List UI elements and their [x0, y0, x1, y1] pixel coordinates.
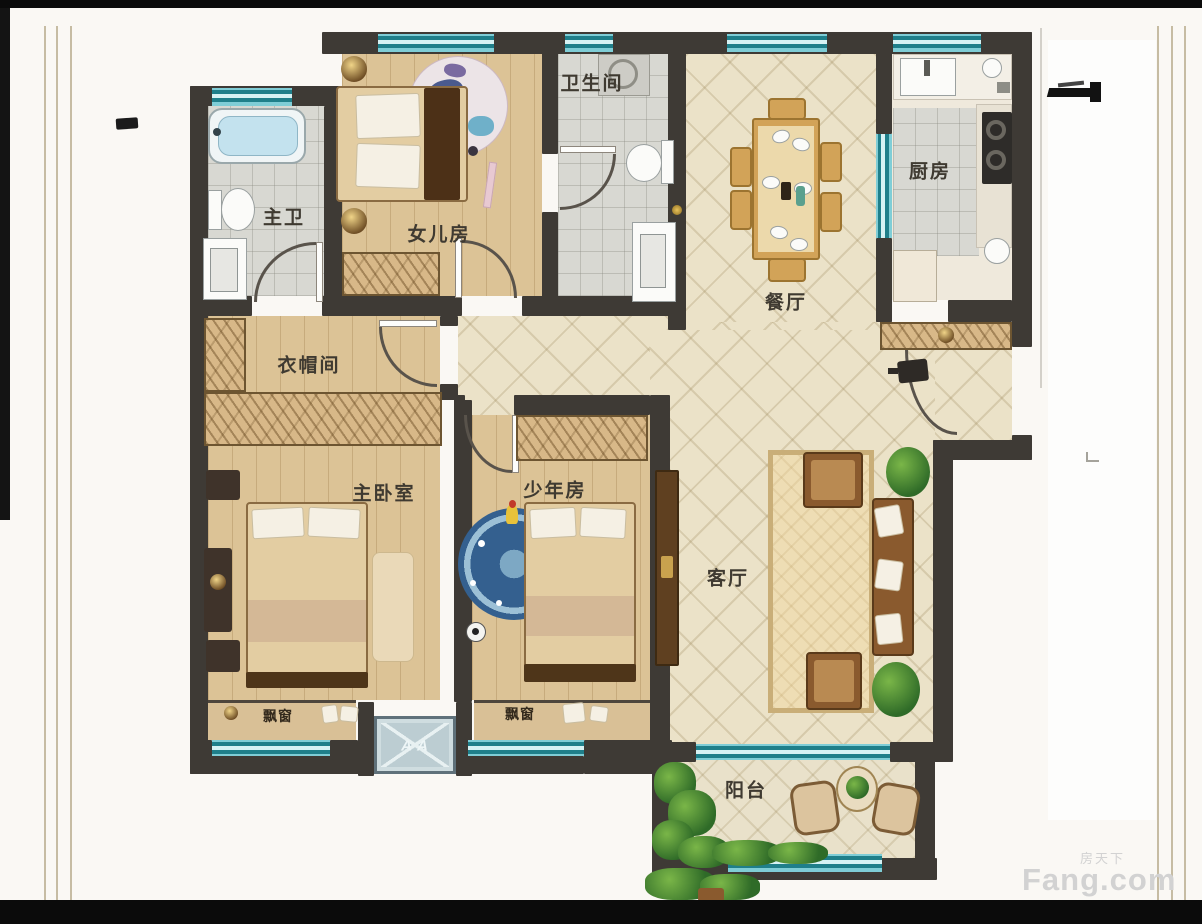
- room-label-daughter-room: 女儿房: [407, 220, 470, 247]
- burner: [986, 150, 1006, 170]
- rug-master: [372, 552, 414, 662]
- bottom-letterbox-bar: [0, 900, 1202, 924]
- fridge: [893, 250, 937, 302]
- pillow: [579, 507, 627, 539]
- nightstand: [206, 640, 240, 672]
- bay-decor-vase: [224, 706, 238, 720]
- bay-decor: [321, 704, 339, 724]
- wall: [514, 395, 650, 415]
- wall: [190, 756, 360, 774]
- door-leaf: [316, 242, 323, 302]
- kitchen-item: [997, 82, 1010, 93]
- room-label-master-bedroom: 主卧室: [352, 479, 415, 506]
- potted-plant: [872, 662, 920, 717]
- rug-star: [478, 540, 485, 547]
- dresser: [204, 548, 232, 632]
- guide-line: [44, 26, 46, 900]
- door-leaf: [455, 238, 462, 298]
- left-edge-strip: [0, 8, 10, 520]
- guide-line: [1171, 26, 1173, 900]
- armchair-cushion: [811, 460, 855, 500]
- ac-platform-label: A A: [401, 738, 429, 755]
- bed-footboard: [524, 664, 636, 682]
- wardrobe-teen: [516, 415, 648, 461]
- entry-marker: [897, 358, 929, 383]
- wall: [933, 440, 953, 762]
- burner: [986, 120, 1006, 140]
- vanity-basin: [640, 234, 666, 288]
- room-label-dining: 餐厅: [765, 288, 807, 315]
- door-leaf: [379, 320, 437, 327]
- candelabra: [781, 182, 791, 200]
- plate: [790, 238, 808, 251]
- entry-decor: [938, 327, 954, 343]
- room-label-kitchen: 厨房: [909, 157, 951, 184]
- window: [565, 34, 613, 52]
- tv-cabinet-knob: [661, 556, 673, 578]
- pillow: [355, 93, 420, 139]
- room-label-master-bath: 主卫: [263, 203, 305, 230]
- faucet-icon: [213, 128, 221, 136]
- window: [727, 34, 827, 52]
- guide-line: [1184, 26, 1186, 900]
- room-label-teen-room: 少年房: [523, 476, 586, 503]
- guide-line: [56, 26, 58, 900]
- bay-decor: [562, 702, 586, 724]
- faucet-icon: [924, 60, 930, 76]
- sofa-pillow: [874, 504, 905, 538]
- room-label-cloakroom: 衣帽间: [277, 351, 340, 378]
- ink-artifact: [116, 117, 139, 130]
- rug-star: [470, 580, 476, 586]
- plate: [762, 176, 780, 189]
- floor-plan-image: A A 主卫 女儿房 卫生间 餐厅 厨房 衣帽间 主卧室 少年房 客厅 阳台 飘…: [0, 0, 1202, 924]
- pillow: [529, 507, 577, 539]
- toilet-tank: [208, 190, 222, 230]
- bed-blanket: [424, 88, 460, 200]
- vanity-basin: [210, 248, 238, 292]
- table-plant: [846, 776, 869, 799]
- wall: [358, 702, 374, 776]
- white-margin-strip: [1048, 40, 1156, 820]
- wardrobe-cloakroom: [204, 392, 442, 446]
- ink-artifact: [1047, 88, 1093, 97]
- wall: [456, 756, 584, 774]
- bay-decor: [589, 705, 609, 723]
- watermark: 房天下 Fang.com: [1022, 848, 1202, 904]
- bathtub-basin: [218, 116, 298, 156]
- dining-chair: [730, 190, 752, 230]
- rug-pattern: [468, 116, 494, 136]
- rug-rocket-tip: [509, 500, 516, 508]
- entry-marker-dot: [888, 368, 898, 374]
- armchair-cushion: [814, 660, 854, 702]
- dining-chair: [820, 142, 842, 182]
- bay-decor: [339, 705, 359, 723]
- soccer-ball-patch: [472, 628, 479, 635]
- bed-throw: [248, 600, 366, 642]
- door-handle: [672, 205, 682, 215]
- window: [212, 88, 292, 106]
- rug-star: [496, 600, 502, 606]
- wall: [456, 702, 472, 776]
- wall: [876, 32, 892, 134]
- pillow: [355, 143, 420, 189]
- bedside-lamp: [341, 208, 367, 234]
- toilet-tank: [661, 140, 674, 184]
- bay-window-label-left: 飘窗: [263, 706, 293, 726]
- wardrobe-cloakroom: [204, 318, 246, 392]
- potted-plant: [886, 447, 930, 497]
- wall: [542, 212, 558, 304]
- nightstand: [206, 470, 240, 500]
- gray-guide-line: [1040, 28, 1042, 388]
- dresser-lamp: [210, 574, 226, 590]
- wardrobe-daughter: [342, 252, 440, 296]
- window: [378, 34, 494, 52]
- corner-mark: [1086, 452, 1099, 462]
- toilet: [626, 144, 662, 182]
- wall: [440, 316, 458, 326]
- rug-pattern: [468, 146, 478, 156]
- wall: [542, 32, 558, 154]
- bay-window-left: [212, 740, 330, 756]
- sofa-pillow: [875, 613, 904, 646]
- balcony-sliding-door: [696, 744, 890, 760]
- wall: [322, 296, 462, 316]
- kitchen-bowl: [982, 58, 1002, 78]
- bottle: [796, 186, 805, 206]
- door-leaf: [560, 146, 616, 153]
- dining-chair: [730, 147, 752, 187]
- guide-line: [1157, 26, 1159, 900]
- ink-artifact: [1090, 82, 1101, 102]
- dining-chair: [820, 192, 842, 232]
- balcony-greens: [768, 842, 828, 864]
- balcony-chair: [789, 779, 842, 837]
- bay-window-label-right: 飘窗: [505, 704, 535, 724]
- wall: [948, 300, 1012, 322]
- bed-footboard: [246, 672, 368, 688]
- sofa-pillow: [874, 558, 904, 591]
- wall: [876, 300, 892, 322]
- bedside-lamp: [341, 56, 367, 82]
- pillow: [251, 507, 304, 540]
- dining-chair: [768, 98, 806, 120]
- toilet: [221, 188, 255, 231]
- room-label-living: 客厅: [707, 564, 749, 591]
- bay-window-right: [468, 740, 584, 756]
- room-label-bathroom: 卫生间: [560, 69, 623, 96]
- dining-chair: [768, 258, 806, 282]
- watermark-site: Fang.com: [1022, 862, 1176, 898]
- guide-line: [70, 26, 72, 900]
- wall: [1012, 32, 1032, 347]
- bed-throw: [526, 596, 634, 636]
- round-sink: [984, 238, 1010, 264]
- window-kitchen-divider: [876, 134, 892, 238]
- window: [893, 34, 981, 52]
- room-label-balcony: 阳台: [725, 776, 767, 803]
- top-letterbox-bar: [0, 0, 1202, 8]
- pillow: [307, 507, 360, 540]
